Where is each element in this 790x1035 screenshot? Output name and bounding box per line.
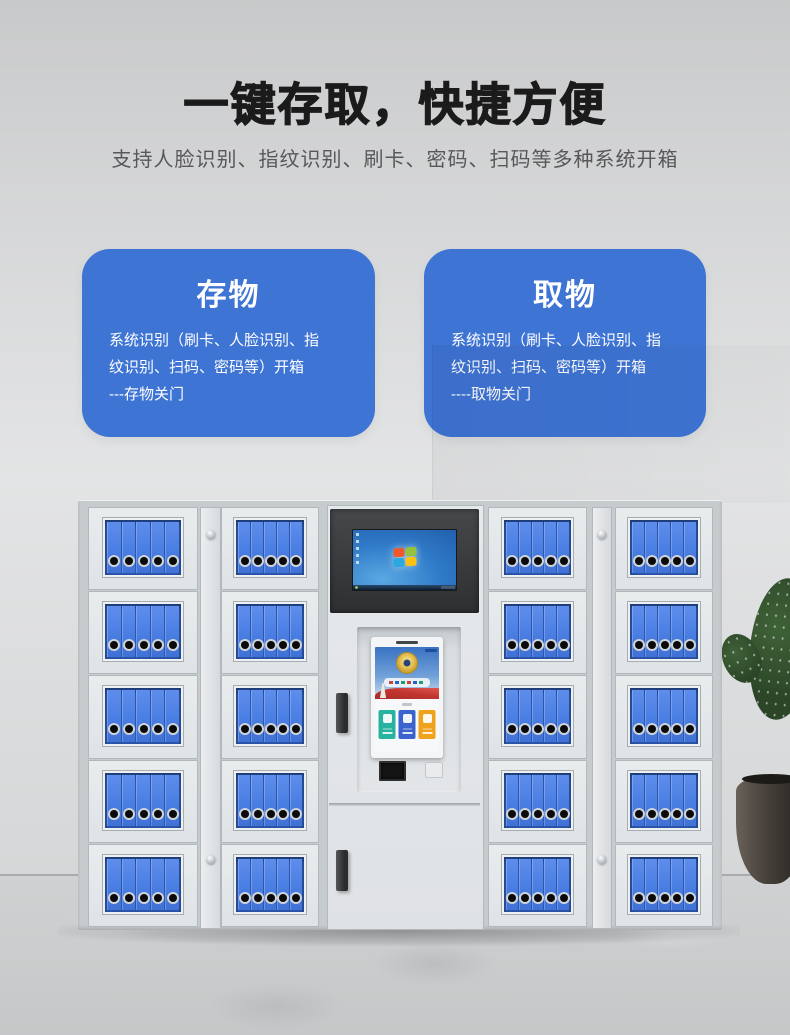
file-binder — [544, 522, 556, 573]
file-binder — [264, 690, 276, 741]
wall-corner — [432, 345, 433, 503]
file-binder — [658, 690, 670, 741]
kiosk-center-unit — [327, 505, 484, 930]
file-binder — [264, 775, 276, 826]
file-binder — [645, 775, 657, 826]
door-window — [234, 602, 305, 661]
locker-door — [88, 844, 198, 927]
lock-strip — [592, 507, 612, 929]
file-binder — [532, 606, 544, 657]
file-binder — [519, 775, 531, 826]
door-window — [502, 602, 574, 661]
file-binder — [277, 522, 289, 573]
store-card-line: 系统识别（刷卡、人脸识别、指 — [109, 327, 349, 354]
locker-door — [488, 507, 587, 590]
door-window — [628, 771, 699, 830]
file-binder — [151, 690, 165, 741]
file-binder — [632, 859, 644, 910]
file-binder — [264, 522, 276, 573]
file-binder — [506, 859, 518, 910]
file-binder — [290, 775, 302, 826]
door-window — [502, 686, 574, 745]
file-binder — [671, 859, 683, 910]
door-window — [628, 686, 699, 745]
file-binder — [165, 859, 179, 910]
keyhole-icon — [206, 530, 215, 539]
file-binder — [136, 690, 150, 741]
touchscreen-menu — [375, 699, 439, 752]
file-binder — [251, 775, 263, 826]
police-badge-icon — [396, 652, 418, 674]
file-binder — [251, 859, 263, 910]
file-binder — [544, 690, 556, 741]
wall-shading — [433, 345, 790, 503]
door-window — [234, 686, 305, 745]
file-binder — [519, 859, 531, 910]
speaker-slot — [396, 641, 418, 644]
store-feature-card: 存物 系统识别（刷卡、人脸识别、指 纹识别、扫码、密码等）开箱 ---存物关门 — [82, 249, 375, 437]
page-subtitle: 支持人脸识别、指纹识别、刷卡、密码、扫码等多种系统开箱 — [0, 143, 790, 172]
door-seam — [329, 803, 480, 806]
file-binder — [645, 859, 657, 910]
file-binder — [151, 775, 165, 826]
smart-file-cabinet — [78, 500, 722, 930]
file-binder — [532, 522, 544, 573]
lock-strip — [200, 507, 221, 929]
start-orb-icon — [355, 586, 358, 589]
file-binder — [658, 522, 670, 573]
store-card-line: 纹识别、扫码、密码等）开箱 — [109, 354, 349, 381]
file-binder — [671, 522, 683, 573]
door-window — [628, 518, 699, 577]
locker-column — [615, 507, 713, 927]
file-binder — [519, 606, 531, 657]
file-binder — [151, 606, 165, 657]
file-binder — [671, 775, 683, 826]
file-binder — [632, 522, 644, 573]
kiosk-touchscreen — [375, 647, 439, 752]
file-binder — [557, 522, 569, 573]
retrieve-card-title: 取物 — [424, 270, 706, 314]
file-binder — [544, 859, 556, 910]
file-binder — [151, 859, 165, 910]
file-binder — [684, 522, 696, 573]
locker-door — [88, 507, 198, 590]
door-handle — [336, 850, 348, 891]
file-binder — [290, 859, 302, 910]
locker-door — [221, 844, 319, 927]
door-window — [502, 518, 574, 577]
file-binder — [107, 775, 121, 826]
file-binder — [107, 859, 121, 910]
file-binder — [632, 690, 644, 741]
file-binder — [251, 606, 263, 657]
qr-scanner-window — [379, 761, 406, 781]
file-binder — [645, 606, 657, 657]
file-binder — [290, 690, 302, 741]
keyhole-icon — [598, 530, 607, 539]
file-binder — [519, 522, 531, 573]
door-window — [628, 602, 699, 661]
door-window — [103, 855, 183, 914]
file-binder — [122, 775, 136, 826]
file-binder — [264, 859, 276, 910]
file-binder — [122, 522, 136, 573]
file-binder — [671, 606, 683, 657]
file-binder — [251, 522, 263, 573]
keyhole-icon — [598, 855, 607, 864]
app-title-banner — [384, 678, 430, 687]
file-binder — [277, 775, 289, 826]
file-binder — [532, 775, 544, 826]
door-handle — [336, 693, 348, 733]
door-window — [103, 771, 183, 830]
locker-door — [615, 675, 713, 758]
file-binder — [277, 859, 289, 910]
file-binder — [165, 775, 179, 826]
file-binder — [122, 690, 136, 741]
locker-column — [488, 507, 587, 927]
locker-column — [221, 507, 319, 927]
touchscreen-header — [375, 647, 439, 699]
file-binder — [632, 606, 644, 657]
door-window — [234, 518, 305, 577]
store-card-body: 系统识别（刷卡、人脸识别、指 纹识别、扫码、密码等）开箱 ---存物关门 — [109, 327, 349, 408]
file-binder — [557, 859, 569, 910]
file-binder — [136, 522, 150, 573]
status-chip — [425, 649, 437, 652]
file-binder — [532, 859, 544, 910]
file-binder — [238, 690, 250, 741]
file-binder — [645, 690, 657, 741]
file-binder — [658, 859, 670, 910]
file-binder — [632, 775, 644, 826]
page-title: 一键存取，快捷方便 — [0, 68, 790, 133]
file-binder — [238, 859, 250, 910]
file-binder — [544, 606, 556, 657]
file-binder — [277, 690, 289, 741]
plant-pot — [736, 776, 790, 884]
locker-door — [615, 844, 713, 927]
door-window — [234, 855, 305, 914]
file-binder — [684, 859, 696, 910]
store-card-title: 存物 — [82, 270, 375, 314]
file-binder — [238, 606, 250, 657]
file-binder — [238, 522, 250, 573]
locker-door — [615, 507, 713, 590]
file-binder — [264, 606, 276, 657]
file-binder — [165, 690, 179, 741]
file-binder — [557, 606, 569, 657]
file-binder — [684, 606, 696, 657]
locker-door — [488, 591, 587, 674]
locker-column — [88, 507, 198, 927]
locker-door — [221, 591, 319, 674]
file-binder — [544, 775, 556, 826]
locker-door — [488, 844, 587, 927]
file-binder — [684, 690, 696, 741]
locker-door — [221, 675, 319, 758]
menu-tile-blue — [399, 710, 416, 739]
file-binder — [165, 606, 179, 657]
keyhole-icon — [206, 855, 215, 864]
door-window — [234, 771, 305, 830]
product-poster: 一键存取，快捷方便 支持人脸识别、指纹识别、刷卡、密码、扫码等多种系统开箱 存物… — [0, 0, 790, 1035]
locker-door — [488, 760, 587, 843]
touchscreen-bezel — [371, 637, 443, 758]
file-binder — [645, 522, 657, 573]
file-binder — [136, 606, 150, 657]
door-window — [103, 602, 183, 661]
file-binder — [151, 522, 165, 573]
locker-door — [488, 675, 587, 758]
file-binder — [506, 775, 518, 826]
file-binder — [519, 690, 531, 741]
file-binder — [107, 690, 121, 741]
locker-door — [615, 760, 713, 843]
desktop-icons — [356, 533, 359, 564]
file-binder — [658, 775, 670, 826]
menu-tile-orange — [419, 710, 436, 739]
red-ribbon-graphic — [375, 688, 439, 699]
file-binder — [557, 775, 569, 826]
hint-text-bar — [402, 703, 412, 706]
store-card-line: ---存物关门 — [109, 381, 349, 408]
file-binder — [107, 522, 121, 573]
file-binder — [671, 690, 683, 741]
menu-tile-teal — [379, 710, 396, 739]
kiosk-monitor-screen — [352, 529, 457, 591]
file-binder — [136, 859, 150, 910]
kiosk-monitor-panel — [330, 509, 479, 613]
system-tray — [441, 586, 455, 589]
file-binder — [238, 775, 250, 826]
locker-door — [221, 507, 319, 590]
file-binder — [506, 606, 518, 657]
door-window — [103, 686, 183, 745]
kiosk-console-recess — [357, 627, 461, 792]
file-binder — [557, 690, 569, 741]
file-binder — [122, 859, 136, 910]
windows-logo-icon — [393, 546, 416, 567]
file-binder — [684, 775, 696, 826]
file-binder — [107, 606, 121, 657]
file-binder — [136, 775, 150, 826]
door-window — [628, 855, 699, 914]
file-binder — [290, 522, 302, 573]
locker-door — [615, 591, 713, 674]
file-binder — [506, 690, 518, 741]
locker-door — [88, 591, 198, 674]
menu-tiles — [379, 710, 436, 739]
taskbar — [353, 585, 456, 590]
file-binder — [165, 522, 179, 573]
door-window — [502, 771, 574, 830]
file-binder — [251, 690, 263, 741]
file-binder — [532, 690, 544, 741]
file-binder — [290, 606, 302, 657]
file-binder — [122, 606, 136, 657]
file-binder — [506, 522, 518, 573]
locker-door — [88, 760, 198, 843]
card-reader — [425, 762, 443, 778]
file-binder — [658, 606, 670, 657]
door-window — [103, 518, 183, 577]
door-window — [502, 855, 574, 914]
locker-door — [221, 760, 319, 843]
file-binder — [277, 606, 289, 657]
locker-door — [88, 675, 198, 758]
